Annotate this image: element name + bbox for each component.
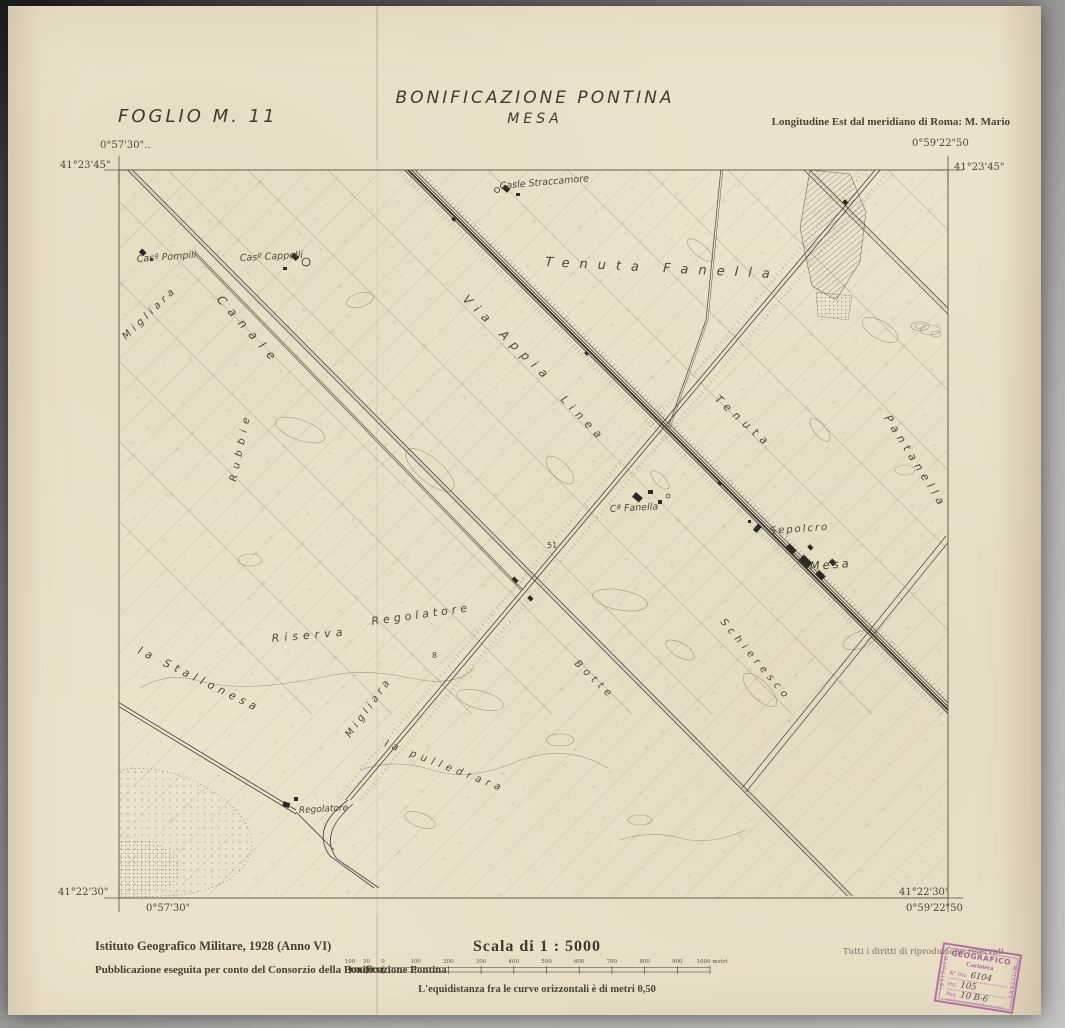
- stamp-text-militare: MILITARE: [1006, 965, 1017, 1000]
- stamp-inv-label: N° Inv.: [949, 971, 968, 980]
- scale-tick-label: 900: [672, 959, 683, 965]
- scale-tick-label: 500: [541, 959, 552, 965]
- coord-bottom-right-lon: 0°59'22"50: [906, 903, 963, 914]
- map-number-8: 8: [432, 651, 437, 660]
- scale-tick-label: 700: [607, 959, 618, 965]
- scale-tick-label: 300: [476, 959, 487, 965]
- stamp-ins-row: Ins. 105: [947, 978, 1007, 998]
- map-label-mesa: Mesa: [809, 556, 852, 573]
- coord-bottom-left-lat: 41°22'30": [58, 887, 109, 898]
- institute-imprint: Istituto Geografico Militare, 1928 (Anno…: [95, 939, 331, 954]
- stamp-pos-value: 10 B-6: [959, 990, 988, 1004]
- coord-top-right-lat: 41°23'45": [954, 162, 1005, 173]
- equidistance-note: L'equidistanza fra le curve orizzontali …: [337, 984, 737, 995]
- coord-top-left-lon: 0°57'30"..: [100, 140, 151, 151]
- stamp-text-istituto: ISTITUTO: [939, 954, 950, 989]
- scale-tick-label: 800: [639, 959, 650, 965]
- longitude-note: Longitudine Est dal meridiano di Roma: M…: [772, 116, 1010, 128]
- stamp-pos-label: Pos.: [946, 991, 958, 999]
- coord-bottom-right-lat: 41°22'30": [899, 887, 950, 898]
- stamp-text-cartoteca: Cartoteca: [942, 957, 1018, 976]
- scale-tick-label: 1000 metri: [697, 959, 728, 965]
- archive-stamp: GEOGRAFICO ISTITUTO MILITARE Cartoteca N…: [934, 942, 1022, 1014]
- map-subtitle: MESA: [330, 111, 740, 127]
- coord-top-right-lon: 0°59'22"50: [912, 138, 969, 149]
- publication-imprint: Pubblicazione eseguita per conto del Con…: [95, 964, 447, 976]
- coord-top-left-lat: 41°23'45": [60, 160, 111, 171]
- map-canvas: Casle Straccamore Casº Pompili Casº Capp…: [0, 0, 1065, 1028]
- map-title: BONIFICAZIONE PONTINA: [330, 88, 740, 108]
- coord-bottom-left-lon: 0°57'30": [146, 903, 190, 914]
- scale-title: Scala di 1 : 5000: [387, 938, 687, 956]
- stamp-ins-value: 105: [960, 980, 978, 992]
- stamp-ins-label: Ins.: [947, 981, 958, 988]
- sheet-content: Casle Straccamore Casº Pompili Casº Capp…: [0, 0, 1065, 1028]
- map-number-51: 51: [547, 541, 557, 550]
- stamp-inventory-row: N° Inv. 6104: [949, 968, 1009, 988]
- scale-tick-label: 600: [574, 959, 585, 965]
- scale-tick-label: 400: [509, 959, 520, 965]
- sheet-number: FOGLIO M. 11: [118, 106, 278, 127]
- stamp-inv-value: 6104: [970, 971, 993, 984]
